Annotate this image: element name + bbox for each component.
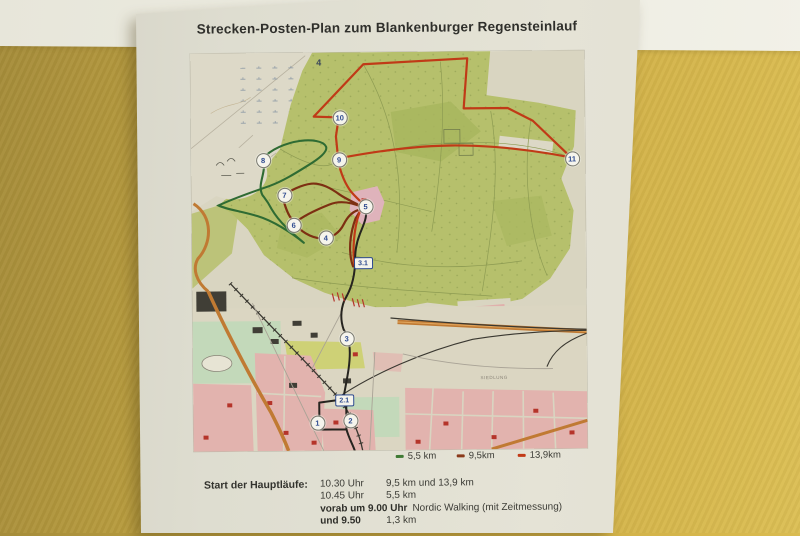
legend-label: 5,5 km [408,451,437,462]
poster-content: Strecken-Posten-Plan zum Blankenburger R… [0,0,800,536]
schedule-row: und 9.501,3 km [320,513,610,528]
course-marker-2.1: 2.1 [335,394,354,406]
course-marker-3.1: 3.1 [353,257,372,269]
course-marker-4: 4 [318,230,333,245]
schedule-block: 10.30 Uhr9,5 km und 13,9 km 10.45 Uhr5,5… [320,476,610,528]
legend-item-9-5km: 9,5km [457,450,495,461]
course-marker-6: 6 [286,217,301,232]
course-marker-2: 2 [343,413,358,428]
course-marker-3: 3 [339,331,354,346]
course-marker-8: 8 [256,153,271,168]
course-marker-11: 11 [565,151,580,166]
course-marker-7: 7 [277,187,292,202]
legend-label: 9,5km [469,450,495,461]
course-marker-1: 1 [310,415,325,430]
poster-wrap: Strecken-Posten-Plan zum Blankenburger R… [0,0,800,533]
legend-swatch-green [396,455,404,458]
poster-paper: Strecken-Posten-Plan zum Blankenburger R… [0,0,800,533]
course-marker-10: 10 [332,110,347,125]
marker-layer: 122.133.145678910114 [190,50,587,451]
legend-swatch-brown [457,454,465,457]
town-label: SIEDLUNG [481,375,508,381]
poster-title: Strecken-Posten-Plan zum Blankenburger R… [190,18,584,36]
legend-item-13-9km: 13,9km [518,450,561,461]
legend-swatch-red [518,454,526,457]
course-marker-5: 5 [358,199,373,214]
legend-item-5-5km: 5,5 km [396,451,437,462]
schedule-heading: Start der Hauptläufe: [204,479,308,492]
compartment-label: 4 [316,58,321,68]
course-map: 122.133.145678910114 SIEDLUNG [190,50,587,451]
legend-label: 13,9km [530,450,561,461]
course-marker-9: 9 [332,152,347,167]
